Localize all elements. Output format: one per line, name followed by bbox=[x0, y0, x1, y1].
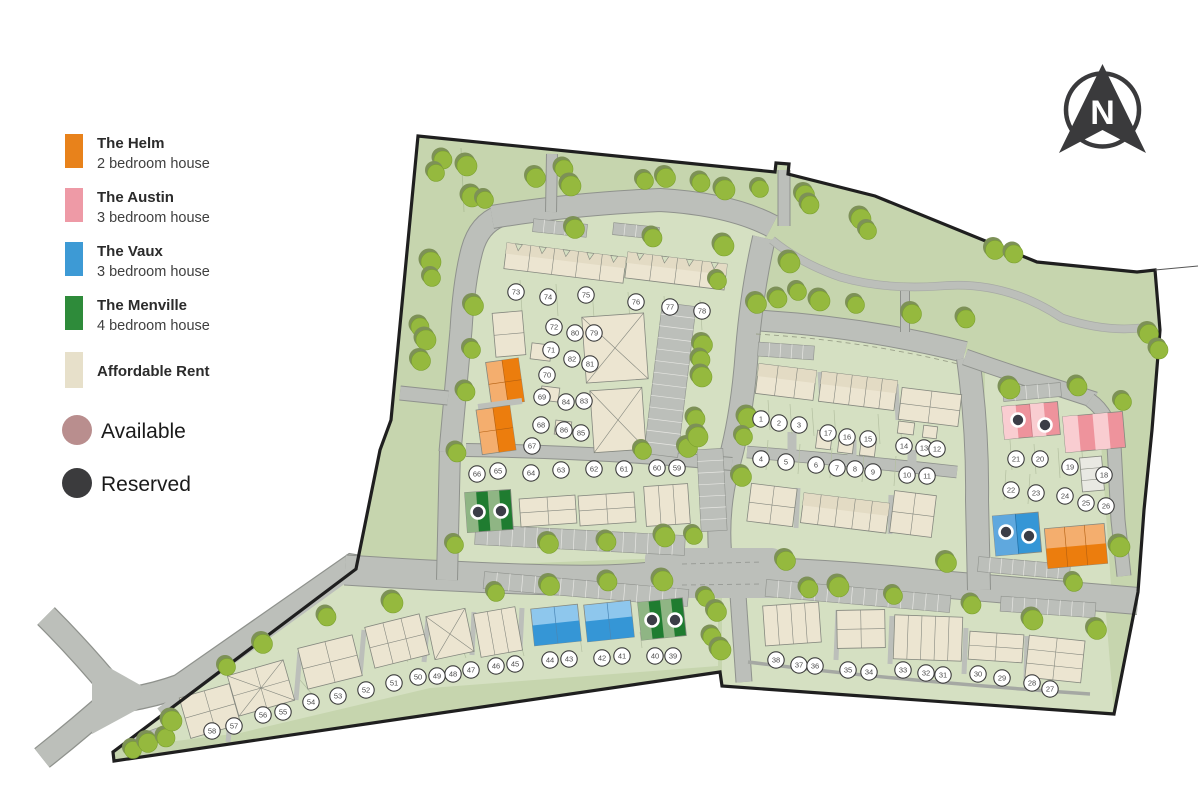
svg-text:8: 8 bbox=[853, 465, 857, 474]
svg-text:1: 1 bbox=[759, 415, 763, 424]
svg-text:4 bedroom house: 4 bedroom house bbox=[97, 318, 210, 334]
svg-text:71: 71 bbox=[547, 346, 555, 355]
svg-text:31: 31 bbox=[939, 671, 947, 680]
svg-text:4: 4 bbox=[759, 455, 763, 464]
svg-text:3: 3 bbox=[797, 421, 801, 430]
svg-text:54: 54 bbox=[307, 698, 315, 707]
svg-text:6: 6 bbox=[814, 461, 818, 470]
svg-text:3 bedroom house: 3 bedroom house bbox=[97, 264, 210, 280]
svg-text:34: 34 bbox=[865, 668, 873, 677]
svg-text:26: 26 bbox=[1102, 502, 1110, 511]
svg-text:7: 7 bbox=[835, 464, 839, 473]
svg-text:23: 23 bbox=[1032, 489, 1040, 498]
svg-text:28: 28 bbox=[1028, 679, 1036, 688]
svg-text:41: 41 bbox=[618, 652, 626, 661]
svg-text:68: 68 bbox=[537, 421, 545, 430]
svg-text:22: 22 bbox=[1007, 486, 1015, 495]
svg-text:58: 58 bbox=[208, 727, 216, 736]
svg-text:33: 33 bbox=[899, 666, 907, 675]
svg-text:12: 12 bbox=[933, 445, 941, 454]
svg-text:14: 14 bbox=[900, 442, 908, 451]
svg-text:9: 9 bbox=[871, 468, 875, 477]
svg-text:11: 11 bbox=[923, 472, 931, 481]
svg-text:43: 43 bbox=[565, 655, 573, 664]
svg-text:57: 57 bbox=[230, 722, 238, 731]
svg-text:32: 32 bbox=[922, 669, 930, 678]
svg-text:The Menville: The Menville bbox=[97, 297, 187, 314]
svg-text:The Austin: The Austin bbox=[97, 189, 174, 206]
svg-text:Available: Available bbox=[101, 420, 186, 443]
svg-text:59: 59 bbox=[673, 464, 681, 473]
svg-text:20: 20 bbox=[1036, 455, 1044, 464]
svg-text:Affordable Rent: Affordable Rent bbox=[97, 363, 210, 380]
svg-text:30: 30 bbox=[974, 670, 982, 679]
svg-text:61: 61 bbox=[620, 465, 628, 474]
svg-text:85: 85 bbox=[577, 429, 585, 438]
svg-text:36: 36 bbox=[811, 662, 819, 671]
svg-text:50: 50 bbox=[414, 673, 422, 682]
svg-text:55: 55 bbox=[279, 708, 287, 717]
svg-text:66: 66 bbox=[473, 470, 481, 479]
svg-text:45: 45 bbox=[511, 660, 519, 669]
svg-text:52: 52 bbox=[362, 686, 370, 695]
svg-text:27: 27 bbox=[1046, 685, 1054, 694]
svg-text:56: 56 bbox=[259, 711, 267, 720]
svg-text:70: 70 bbox=[543, 371, 551, 380]
svg-text:81: 81 bbox=[586, 360, 594, 369]
svg-text:Reserved: Reserved bbox=[101, 473, 191, 496]
svg-text:21: 21 bbox=[1012, 455, 1020, 464]
svg-text:75: 75 bbox=[582, 291, 590, 300]
svg-text:62: 62 bbox=[590, 465, 598, 474]
svg-text:N: N bbox=[1090, 94, 1115, 132]
svg-text:29: 29 bbox=[998, 674, 1006, 683]
svg-text:86: 86 bbox=[560, 426, 568, 435]
svg-text:44: 44 bbox=[546, 656, 554, 665]
svg-text:The Vaux: The Vaux bbox=[97, 243, 164, 260]
svg-text:40: 40 bbox=[651, 652, 659, 661]
svg-text:69: 69 bbox=[538, 393, 546, 402]
svg-text:77: 77 bbox=[666, 303, 674, 312]
svg-text:37: 37 bbox=[795, 661, 803, 670]
svg-text:53: 53 bbox=[334, 692, 342, 701]
svg-text:17: 17 bbox=[824, 429, 832, 438]
svg-text:39: 39 bbox=[669, 652, 677, 661]
svg-text:49: 49 bbox=[433, 672, 441, 681]
svg-text:24: 24 bbox=[1061, 492, 1069, 501]
svg-text:35: 35 bbox=[844, 666, 852, 675]
svg-text:46: 46 bbox=[492, 662, 500, 671]
svg-text:2 bedroom house: 2 bedroom house bbox=[97, 156, 210, 172]
svg-text:5: 5 bbox=[784, 458, 788, 467]
svg-text:13: 13 bbox=[920, 444, 928, 453]
svg-text:The Helm: The Helm bbox=[97, 135, 165, 152]
svg-text:76: 76 bbox=[632, 298, 640, 307]
svg-text:3 bedroom house: 3 bedroom house bbox=[97, 210, 210, 226]
svg-text:48: 48 bbox=[449, 670, 457, 679]
svg-text:18: 18 bbox=[1100, 471, 1108, 480]
svg-text:38: 38 bbox=[772, 656, 780, 665]
svg-text:10: 10 bbox=[903, 471, 911, 480]
svg-text:83: 83 bbox=[580, 397, 588, 406]
svg-text:25: 25 bbox=[1082, 499, 1090, 508]
svg-text:84: 84 bbox=[562, 398, 570, 407]
svg-text:79: 79 bbox=[590, 329, 598, 338]
svg-text:15: 15 bbox=[864, 435, 872, 444]
svg-text:78: 78 bbox=[698, 307, 706, 316]
svg-text:74: 74 bbox=[544, 293, 552, 302]
svg-text:51: 51 bbox=[390, 679, 398, 688]
svg-text:42: 42 bbox=[598, 654, 606, 663]
svg-text:63: 63 bbox=[557, 466, 565, 475]
svg-text:67: 67 bbox=[528, 442, 536, 451]
svg-text:82: 82 bbox=[568, 355, 576, 364]
svg-text:47: 47 bbox=[467, 666, 475, 675]
svg-text:60: 60 bbox=[653, 464, 661, 473]
svg-text:80: 80 bbox=[571, 329, 579, 338]
svg-text:72: 72 bbox=[550, 323, 558, 332]
svg-text:73: 73 bbox=[512, 288, 520, 297]
svg-text:16: 16 bbox=[843, 433, 851, 442]
svg-text:64: 64 bbox=[527, 469, 535, 478]
svg-text:19: 19 bbox=[1066, 463, 1074, 472]
svg-text:65: 65 bbox=[494, 467, 502, 476]
svg-text:2: 2 bbox=[777, 419, 781, 428]
